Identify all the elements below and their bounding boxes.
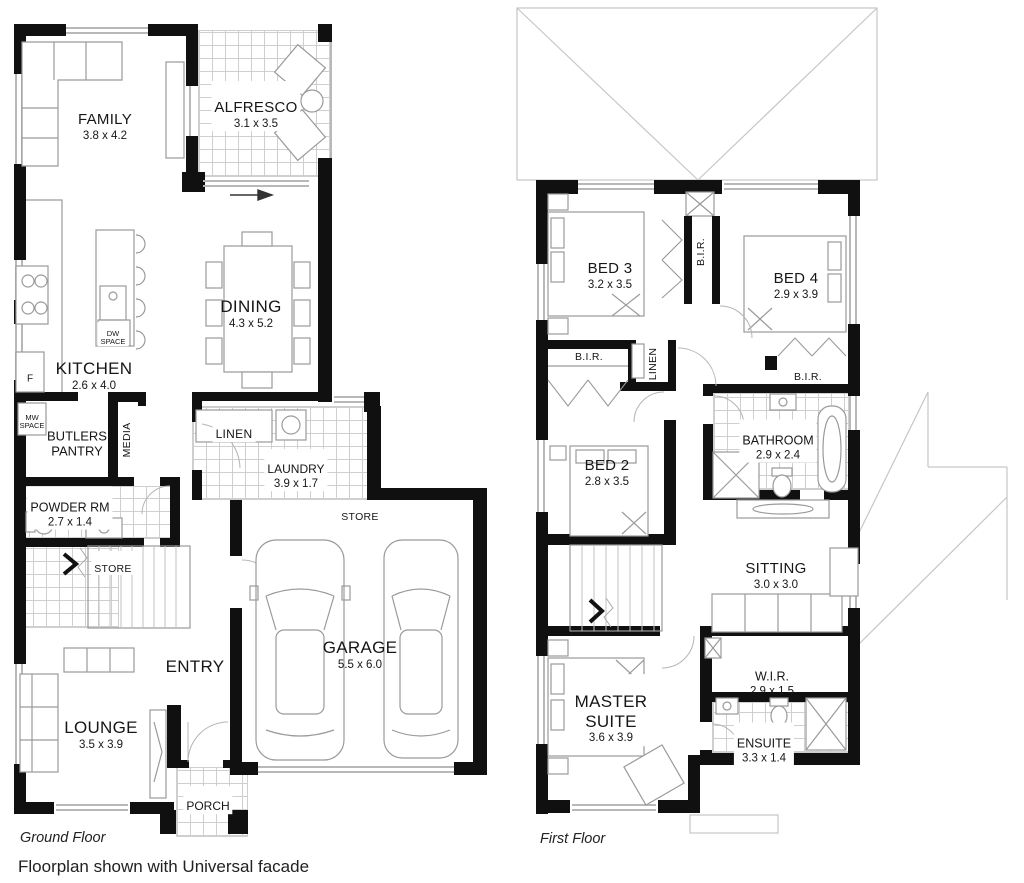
entry-door-arc — [188, 722, 228, 762]
bed4-door-arc — [720, 306, 752, 338]
powder-room-label: POWDER RM2.7 x 1.4 — [27, 487, 112, 530]
bed2-room-label: BED 22.8 x 3.5 — [585, 439, 630, 489]
bathroom-room-label: BATHROOM2.9 x 2.4 — [739, 420, 816, 463]
ground-floor-caption: Ground Floor — [20, 830, 105, 846]
bed4-room-label: BED 42.9 x 3.9 — [774, 252, 819, 302]
kitchen-room-label: KITCHEN2.6 x 4.0 — [56, 341, 133, 393]
linen-label-first: LINEN — [647, 348, 659, 380]
entry-label: ENTRY — [166, 639, 225, 677]
bed2-door-arc — [634, 392, 664, 422]
butlers-pantry-label: BUTLERS PANTRY — [47, 415, 107, 460]
bed4-robe-doors — [778, 338, 846, 356]
store-garage-label: STORE — [341, 499, 378, 523]
garage-room-label: GARAGE5.5 x 6.0 — [323, 620, 398, 672]
linen-label-ground: LINEN — [213, 414, 256, 442]
master-door-arc — [662, 636, 694, 668]
floorplan-drawing — [0, 0, 1024, 883]
bir-bed2-label: B.I.R. — [575, 351, 603, 363]
dw-space-label: DW SPACE — [98, 322, 129, 346]
lounge-room-label: LOUNGE3.5 x 3.9 — [64, 700, 138, 752]
store-hall-label: STORE — [91, 551, 134, 575]
family-tv-unit — [166, 62, 184, 158]
media-label: MEDIA — [121, 423, 133, 458]
kitchen-bench — [16, 200, 62, 435]
sitting-console — [737, 500, 829, 518]
wir-label: W.I.R.2.9 x 1.5 — [750, 656, 794, 699]
garage-door-arc — [242, 560, 276, 594]
alfresco-room-label: ALFRESCO3.1 x 3.5 — [211, 81, 300, 131]
porch-label: PORCH — [183, 786, 232, 814]
master-chair — [624, 745, 684, 805]
dining-room-label: DINING4.3 x 5.2 — [220, 279, 281, 331]
wir-robe — [705, 638, 721, 658]
bed3-room-label: BED 33.2 x 3.5 — [588, 242, 633, 292]
bir-bed4-label: B.I.R. — [791, 371, 825, 383]
laundry-room-label: LAUNDRY3.9 x 1.7 — [264, 449, 327, 491]
sitting-room-label: SITTING3.0 x 3.0 — [745, 542, 806, 592]
first-floor-staircase — [570, 545, 662, 631]
stairs-direction-arrow — [590, 600, 602, 622]
family-room-label: FAMILY3.8 x 4.2 — [75, 93, 135, 143]
linen-shelf — [632, 344, 644, 378]
bed3-robe-doors — [662, 220, 682, 298]
fridge-label: F — [27, 362, 33, 385]
facade-caption: Floorplan shown with Universal facade — [18, 857, 309, 877]
mw-space-label: MW SPACE — [20, 406, 45, 430]
first-floor-caption: First Floor — [540, 831, 605, 847]
hall-door-arc — [678, 348, 716, 386]
floorplan-page: FAMILY3.8 x 4.2 ALFRESCO3.1 x 3.5 DINING… — [0, 0, 1024, 883]
master-suite-label: MASTER SUITE3.6 x 3.9 — [572, 674, 651, 746]
ensuite-room-label: ENSUITE3.3 x 1.4 — [734, 723, 794, 766]
bir-hall-label: B.I.R. — [695, 238, 707, 266]
alfresco-door-arrow-icon — [230, 190, 272, 200]
bed2-robe-doors — [548, 380, 628, 406]
